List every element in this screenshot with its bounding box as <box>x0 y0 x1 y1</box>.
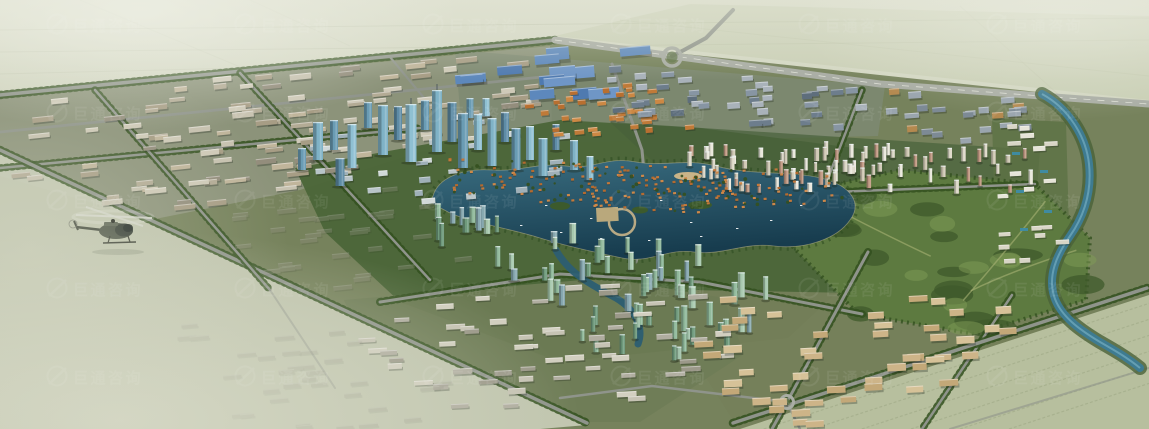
bottom-slabs-building <box>633 311 653 317</box>
watermark-text: 巨通咨询 <box>825 369 895 387</box>
villa-shadow <box>724 200 727 201</box>
cbd-tower-lit-side <box>531 126 532 160</box>
cbd-tower-shade-side <box>336 158 339 186</box>
south-shore-towers-tower-lit-side <box>552 263 553 279</box>
north-residential-tower-lit-side <box>692 145 693 156</box>
right-offices-building <box>1007 124 1018 131</box>
south-shore-towers-tower-roof-cap <box>653 269 658 270</box>
north-residential-tower-roof-cap <box>1006 155 1011 156</box>
villa-shadow <box>605 204 608 205</box>
villa-shadow <box>660 182 663 183</box>
right-offices-building <box>998 244 1010 251</box>
villa-shadow <box>716 174 719 175</box>
south-shore-towers-2-tower-shade-side <box>682 332 684 351</box>
villa-shadow <box>739 185 742 186</box>
villa-roof <box>603 189 606 191</box>
park-tree-cluster <box>910 202 944 216</box>
south-shore-towers-tower-roof-cap <box>656 239 662 240</box>
south-shore-towers-2-tower-lit-side <box>636 322 637 338</box>
villa-roof <box>649 165 652 167</box>
north-residential-tower-roof-cap <box>860 167 864 168</box>
south-shore-towers-2-tower-lit-side <box>676 321 677 339</box>
south-shore-towers-2-tower-roof-cap <box>674 307 679 308</box>
villa-shadow <box>530 178 533 179</box>
right-offices-building <box>1035 233 1047 240</box>
south-shore-towers-tower-roof-cap <box>484 219 490 220</box>
south-shore-towers-tower-roof-cap <box>707 302 713 303</box>
north-residential-tower-lit-side <box>964 147 965 162</box>
villa-shadow <box>707 205 710 206</box>
villa-tree <box>743 177 747 181</box>
north-residential-tower-shade-side <box>849 144 851 158</box>
villa-shadow <box>725 190 728 191</box>
villa-roof <box>493 183 496 185</box>
villa-shadow <box>723 178 726 179</box>
south-shore-towers-2-tower-lit-side <box>594 316 595 331</box>
north-residential-tower-shade-side <box>888 184 890 192</box>
boat <box>700 236 702 237</box>
north-residential-tower-lit-side <box>794 149 795 158</box>
north-residential-tower-roof-cap <box>758 148 763 149</box>
watermark-text: 巨通咨询 <box>449 193 519 211</box>
courtyard-blocks-building <box>949 308 965 318</box>
villa-roof <box>724 197 727 199</box>
slate-industrial-building <box>833 123 845 133</box>
villa-shadow <box>523 164 526 165</box>
north-residential-tower-shade-side <box>860 167 862 181</box>
north-residential-tower-roof-cap <box>833 169 838 170</box>
villa-roof <box>697 211 700 213</box>
villa-shadow <box>448 162 451 163</box>
north-residential-tower-shade-side <box>872 165 873 175</box>
watermark-text: 巨通咨询 <box>261 17 331 35</box>
north-residential-tower-lit-side <box>762 148 763 158</box>
villa-roof <box>592 195 595 197</box>
north-residential-tower-lit-side <box>818 148 819 161</box>
cbd-tower-lit-side <box>320 122 322 160</box>
south-shore-towers-tower-roof-cap <box>511 268 518 269</box>
south-shore-towers-tower-roof-cap <box>542 267 547 268</box>
north-residential-tower-shade-side <box>905 147 907 157</box>
north-residential-tower-lit-side <box>870 175 871 189</box>
north-residential-tower-shade-side <box>814 148 816 161</box>
watermark-text: 巨通咨询 <box>1013 369 1083 387</box>
courtyard-blocks-building <box>813 331 829 340</box>
north-residential-tower-shade-side <box>891 149 892 157</box>
watermark-text: 巨通咨询 <box>637 193 707 211</box>
north-residential-tower-lit-side <box>980 149 981 162</box>
villa-tree <box>554 174 557 177</box>
north-residential-tower-roof-cap <box>724 144 728 145</box>
south-shore-towers-tower-shade-side <box>484 219 486 234</box>
villa-shadow <box>711 184 714 185</box>
courtyard-blocks-building <box>767 311 783 320</box>
villa-roof <box>593 186 596 188</box>
north-residential-tower-roof-cap <box>823 147 827 148</box>
north-residential-tower-shade-side <box>742 160 744 169</box>
north-residential-tower-lit-side <box>874 165 875 175</box>
north-residential-tower-lit-side <box>714 159 715 171</box>
villa-roof <box>503 184 506 186</box>
south-shore-towers-tower-lit-side <box>608 256 609 273</box>
cbd-tower-roof-cap <box>483 98 490 99</box>
south-shore-towers-tower-lit-side <box>556 237 557 249</box>
boat <box>648 240 650 241</box>
villa-roof <box>656 176 659 178</box>
villa-roof <box>697 179 700 181</box>
cbd-tower-lit-side <box>335 120 336 150</box>
south-shore-towers-tower-roof-cap <box>646 273 652 274</box>
south-shore-towers-tower-roof-cap <box>435 203 441 204</box>
south-shore-towers-tower-shade-side <box>439 223 441 247</box>
villa-shadow <box>513 176 516 177</box>
cbd-tower-shade-side <box>570 140 573 170</box>
north-residential-tower-shade-side <box>790 171 791 180</box>
boat <box>590 218 592 219</box>
north-residential-tower-lit-side <box>825 147 826 161</box>
north-residential-tower-lit-side <box>746 160 747 169</box>
south-shore-towers-2-tower-roof-cap <box>686 328 691 329</box>
north-residential-tower-shade-side <box>843 160 845 172</box>
north-residential-tower-shade-side <box>967 167 968 182</box>
cbd-tower-roof-cap <box>448 102 457 103</box>
villa-shadow <box>595 192 598 193</box>
south-shore-towers-tower-shade-side <box>605 256 607 273</box>
north-residential-tower-lit-side <box>797 181 798 190</box>
south-shore-towers-tower-lit-side <box>629 294 630 312</box>
villa-roof <box>731 193 734 195</box>
north-residential-tower-shade-side <box>886 143 887 155</box>
north-residential-tower-roof-cap <box>715 165 719 166</box>
north-residential-tower-roof-cap <box>742 160 747 161</box>
villa-shadow <box>824 188 827 189</box>
north-residential-tower-roof-cap <box>784 169 789 170</box>
watermark-text: 巨通咨询 <box>73 281 143 299</box>
north-residential-tower-roof-cap <box>948 148 952 149</box>
north-residential-tower-roof-cap <box>867 175 872 176</box>
villa-shadow <box>690 185 693 186</box>
boat <box>736 228 738 229</box>
south-shore-towers-2-tower-roof-cap <box>676 347 681 348</box>
south-shore-towers-tower-lit-side <box>699 244 700 266</box>
right-offices-building <box>1007 141 1022 148</box>
villa-roof <box>827 182 830 184</box>
villa-tree <box>458 178 461 181</box>
north-residential-tower-roof-cap <box>891 149 895 150</box>
north-residential-tower-roof-cap <box>712 159 716 160</box>
villa-shadow <box>703 189 706 190</box>
cbd-tower-roof-cap <box>553 124 560 125</box>
north-residential-tower-shade-side <box>784 169 786 184</box>
north-residential-tower-roof-cap <box>923 156 927 157</box>
cbd-tower-shade-side <box>539 138 542 176</box>
south-shore-towers-tower-lit-side <box>685 305 686 331</box>
villa-roof <box>708 189 711 191</box>
north-residential-tower-roof-cap <box>996 164 999 165</box>
villa-tree <box>635 182 639 186</box>
south-shore-towers-2-tower-lit-side <box>596 305 597 325</box>
bottom-slabs-building <box>565 285 583 293</box>
villa-roof <box>594 200 597 202</box>
south-shore-towers-tower-lit-side <box>583 259 584 280</box>
villa-roof <box>509 177 512 179</box>
villa-shadow <box>729 192 732 193</box>
villa-roof <box>664 166 667 168</box>
villa-roof <box>789 194 792 196</box>
slate-industrial-building <box>831 89 845 97</box>
orange-industrial-building <box>597 101 607 107</box>
cbd-tower-lit-side <box>399 106 400 140</box>
south-shore-towers-tower-roof-cap <box>553 237 557 238</box>
north-residential-tower-roof-cap <box>791 168 796 169</box>
villa-shadow <box>603 192 606 193</box>
north-residential-tower-shade-side <box>923 156 924 170</box>
north-residential-tower-lit-side <box>891 184 892 192</box>
villa-shadow <box>547 202 550 203</box>
south-shore-towers-tower-shade-side <box>495 216 496 233</box>
ne-industrial-building <box>904 112 920 120</box>
south-shore-towers-tower-shade-side <box>685 260 687 281</box>
north-residential-tower-shade-side <box>775 177 776 190</box>
courtyard-blocks-building <box>925 356 945 365</box>
villa-shadow <box>571 181 574 182</box>
south-shore-towers-tower-shade-side <box>551 231 553 243</box>
villa-shadow <box>501 189 504 190</box>
villa-shadow <box>626 172 629 173</box>
park-fairway <box>948 321 985 335</box>
south-shore-towers-2-tower-roof-cap <box>620 334 625 335</box>
north-residential-tower-shade-side <box>819 170 821 185</box>
north-residential-tower-roof-cap <box>874 143 878 144</box>
north-residential-tower-lit-side <box>863 167 864 181</box>
south-shore-towers-tower-roof-cap <box>641 274 646 275</box>
right-offices-building <box>1004 258 1017 265</box>
villa-shadow <box>795 174 798 175</box>
north-residential-tower-roof-cap <box>899 164 903 165</box>
watermark-text: 巨通咨询 <box>637 105 707 123</box>
north-residential-tower-roof-cap <box>860 161 864 162</box>
villa-roof <box>743 169 746 171</box>
south-shore-towers-tower-lit-side <box>589 263 590 277</box>
villa-tree <box>655 188 658 191</box>
villa-roof <box>597 197 600 199</box>
north-residential-tower-shade-side <box>687 152 689 167</box>
north-residential-tower-lit-side <box>708 151 709 159</box>
villa-roof <box>762 172 765 174</box>
south-shore-towers-tower-lit-side <box>628 237 629 252</box>
villa-roof <box>734 193 737 195</box>
south-shore-towers-2-tower-roof-cap <box>672 345 677 346</box>
cbd-tower-roof-cap <box>364 102 372 103</box>
north-residential-tower-shade-side <box>914 154 915 166</box>
blue-factories-building <box>529 88 556 103</box>
villa-roof <box>500 180 503 182</box>
cbd-tower-lit-side <box>303 148 304 170</box>
north-residential-tower-roof-cap <box>702 166 706 167</box>
watermark-text: 巨通咨询 <box>637 281 707 299</box>
villa-shadow <box>618 177 621 178</box>
cbd-tower-lit-side <box>545 138 547 176</box>
south-shore-towers-tower-roof-cap <box>732 282 738 283</box>
north-residential-tower-roof-cap <box>709 169 713 170</box>
watermark-text: 巨通咨询 <box>261 281 331 299</box>
villa-roof <box>530 190 533 192</box>
cbd-tower-roof-cap <box>467 98 474 99</box>
villa-roof <box>697 185 700 187</box>
watermark-text: 巨通咨询 <box>825 193 895 211</box>
villa-roof <box>654 183 657 185</box>
north-residential-tower-shade-side <box>745 184 746 193</box>
north-residential-tower-roof-cap <box>978 175 981 176</box>
watermark-text: 巨通咨询 <box>637 17 707 35</box>
villa-roof <box>645 184 648 186</box>
cbd-tower-lit-side <box>439 90 441 152</box>
south-shore-towers-2-tower-shade-side <box>672 321 674 339</box>
villa-roof <box>600 205 603 207</box>
villa-shadow <box>583 194 586 195</box>
villa-roof <box>577 163 580 165</box>
villa-shadow <box>538 191 541 192</box>
villa-shadow <box>579 201 582 202</box>
south-shore-towers-tower-roof-cap <box>595 246 601 247</box>
cbd-tower-roof-cap <box>421 100 429 101</box>
bottom-slabs-building <box>565 354 586 363</box>
villa-roof <box>739 182 742 184</box>
villa-roof <box>587 189 590 191</box>
bottom-slabs-building <box>615 312 632 320</box>
villa-roof <box>588 182 591 184</box>
south-shore-towers-tower-lit-side <box>488 219 489 234</box>
north-residential-tower-shade-side <box>978 175 979 186</box>
villa-tree <box>511 160 514 163</box>
north-residential-tower-roof-cap <box>779 160 783 161</box>
north-residential-tower-shade-side <box>991 150 993 165</box>
villa-shadow <box>481 190 484 191</box>
south-shore-towers-2-tower-lit-side <box>678 307 679 322</box>
villa-tree <box>695 177 697 179</box>
south-shore-towers-tower-lit-side <box>552 279 553 301</box>
north-residential-tower-shade-side <box>814 162 815 172</box>
cbd-tower-roof-cap <box>512 128 521 129</box>
bottom-slabs-building <box>586 366 602 372</box>
villa-shadow <box>742 208 745 209</box>
villa-roof <box>607 182 610 184</box>
villa-roof <box>562 171 565 173</box>
north-residential-tower-lit-side <box>735 156 736 164</box>
villa-roof <box>622 179 625 181</box>
villa-shadow <box>594 202 597 203</box>
orange-industrial-building <box>525 103 535 110</box>
courtyard-blocks-building <box>906 386 924 395</box>
villa-tree <box>750 195 753 198</box>
watermark-text: 巨通咨询 <box>261 193 331 211</box>
villa-roof <box>448 159 451 161</box>
villa-roof <box>735 199 738 201</box>
park-fairway <box>930 216 956 232</box>
north-residential-tower-shade-side <box>941 166 943 177</box>
park-fairway <box>1064 253 1097 267</box>
villa-roof <box>715 197 718 199</box>
north-residential-tower-roof-cap <box>705 151 709 152</box>
villa-tree <box>553 198 557 202</box>
courtyard-blocks-building <box>806 420 825 429</box>
villa-roof <box>690 183 693 185</box>
cbd-tower-lit-side <box>413 104 415 162</box>
slate-industrial-building <box>845 87 859 96</box>
north-residential-tower-lit-side <box>743 181 744 191</box>
villa-tree <box>559 194 562 197</box>
villa-tree <box>553 182 555 184</box>
cbd-tower-lit-side <box>354 124 356 168</box>
right-offices-building <box>1020 133 1035 140</box>
north-residential-tower-roof-cap <box>833 172 836 173</box>
villa-shadow <box>545 180 548 181</box>
north-residential-tower-shade-side <box>848 164 850 174</box>
villa-shadow <box>715 190 718 191</box>
villa-tree <box>495 186 498 189</box>
south-shore-towers-tower-lit-side <box>563 284 564 305</box>
north-residential-tower-lit-side <box>866 146 867 158</box>
villa-shadow <box>562 173 565 174</box>
villa-shadow <box>520 195 523 196</box>
villa-shadow <box>652 211 655 212</box>
north-residential-tower-roof-cap <box>861 152 864 153</box>
villa-shadow <box>553 169 556 170</box>
north-residential-tower-roof-cap <box>800 169 803 170</box>
watermark-text: 巨通咨询 <box>73 105 143 123</box>
south-shore-towers-tower-shade-side <box>436 217 438 240</box>
cbd-tower-shade-side <box>526 126 529 160</box>
villa-shadow <box>571 202 574 203</box>
courtyard-blocks-building <box>804 352 823 361</box>
scene-canvas: 巨通咨询巨通咨询巨通咨询巨通咨询巨通咨询巨通咨询巨通咨询巨通咨询巨通咨询巨通咨询… <box>0 0 1149 429</box>
cbd-tower-roof-cap <box>394 106 402 107</box>
villa-roof <box>547 199 550 201</box>
villa-shadow <box>715 199 718 200</box>
villa-roof <box>574 164 577 166</box>
villa-roof <box>539 183 542 185</box>
north-residential-tower-roof-cap <box>735 178 738 179</box>
south-shore-towers-tower-roof-cap <box>628 252 634 253</box>
north-residential-tower-roof-cap <box>853 160 856 161</box>
north-residential-tower-roof-cap <box>732 156 736 157</box>
watermark-text: 巨通咨询 <box>637 369 707 387</box>
north-residential-tower-lit-side <box>1009 155 1010 163</box>
courtyard-blocks-building <box>956 336 976 347</box>
south-shore-towers-2-tower-shade-side <box>591 316 593 331</box>
villa-tree <box>684 179 687 182</box>
villa-shadow <box>493 169 496 170</box>
villa-roof <box>703 186 706 188</box>
north-residential-tower-roof-cap <box>730 157 735 158</box>
cbd-tower-lit-side <box>369 102 370 128</box>
slate-industrial-building <box>802 92 814 101</box>
south-shore-towers-tower-shade-side <box>559 284 561 305</box>
north-residential-tower-shade-side <box>929 168 930 182</box>
villa-tree <box>722 181 725 184</box>
villa-tree <box>526 183 529 186</box>
bottom-slabs-building <box>532 299 549 305</box>
south-shore-towers-tower-roof-cap <box>495 246 500 247</box>
cbd-podium-building <box>315 168 326 176</box>
north-residential-tower-lit-side <box>901 164 902 177</box>
bottom-slabs-building <box>595 342 612 350</box>
north-residential-tower-shade-side <box>954 180 956 194</box>
courtyard-blocks-building <box>902 354 921 364</box>
villa-shadow <box>789 196 792 197</box>
villa-shadow <box>649 167 652 168</box>
villa-tree <box>595 167 599 171</box>
